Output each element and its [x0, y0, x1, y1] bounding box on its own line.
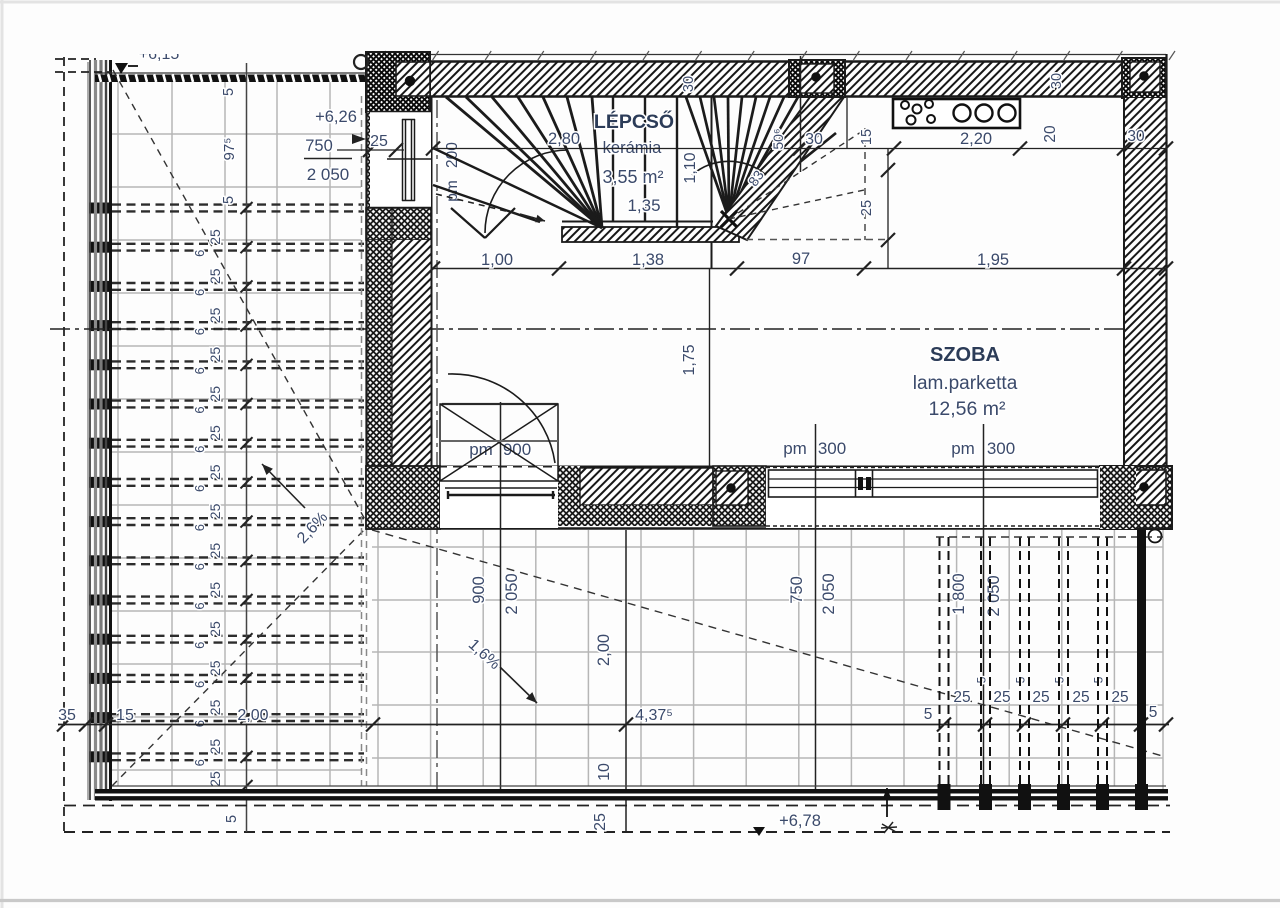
svg-text:2,20: 2,20: [960, 130, 992, 148]
svg-text:lam.parketta: lam.parketta: [913, 373, 1018, 394]
svg-text:6: 6: [192, 485, 207, 492]
svg-text:25: 25: [207, 503, 223, 519]
svg-text:6: 6: [192, 367, 207, 374]
svg-text:25: 25: [207, 660, 223, 676]
svg-text:SZOBA: SZOBA: [930, 344, 1000, 366]
svg-text:6: 6: [192, 563, 207, 570]
svg-text:5: 5: [924, 706, 933, 723]
svg-text:6: 6: [192, 642, 207, 649]
svg-text:3,55 m²: 3,55 m²: [602, 167, 663, 187]
svg-text:5: 5: [221, 88, 237, 96]
svg-text:6: 6: [192, 759, 207, 766]
svg-text:750: 750: [788, 576, 806, 604]
svg-text:1,10: 1,10: [682, 152, 699, 183]
svg-text:30: 30: [681, 76, 697, 92]
svg-text:5: 5: [224, 815, 240, 823]
svg-text:25: 25: [207, 739, 223, 755]
svg-text:20: 20: [1042, 125, 1059, 143]
svg-text:6: 6: [192, 524, 207, 531]
svg-text:2,00: 2,00: [595, 634, 613, 666]
svg-text:35: 35: [58, 707, 76, 724]
svg-text:25: 25: [592, 813, 609, 831]
svg-text:750: 750: [305, 137, 333, 155]
svg-text:900: 900: [503, 440, 531, 459]
svg-text:25: 25: [207, 229, 223, 245]
svg-text:6: 6: [192, 602, 207, 609]
svg-text:6: 6: [192, 406, 207, 413]
svg-text:2,80: 2,80: [548, 130, 580, 148]
svg-text:25: 25: [1072, 689, 1089, 706]
svg-text:1,95: 1,95: [977, 251, 1009, 269]
svg-text:25: 25: [207, 268, 223, 284]
svg-text:5: 5: [221, 196, 237, 204]
svg-text:+6,78: +6,78: [779, 812, 821, 830]
svg-text:6: 6: [192, 289, 207, 296]
svg-text:5: 5: [1149, 704, 1158, 721]
svg-text:25: 25: [207, 771, 223, 787]
svg-text:1,35: 1,35: [627, 196, 660, 215]
svg-text:97: 97: [792, 250, 810, 268]
svg-text:25: 25: [207, 386, 223, 402]
svg-text:1,00: 1,00: [481, 251, 513, 269]
svg-text:25: 25: [207, 307, 223, 323]
svg-text:4,37⁵: 4,37⁵: [635, 707, 673, 724]
svg-text:300: 300: [987, 439, 1015, 458]
svg-text:1,75: 1,75: [681, 344, 698, 375]
svg-text:6: 6: [192, 328, 207, 335]
svg-text:25: 25: [207, 582, 223, 598]
svg-text:25: 25: [207, 699, 223, 715]
svg-text:30: 30: [1049, 73, 1065, 89]
svg-text:15: 15: [116, 707, 134, 724]
svg-text:6: 6: [192, 720, 207, 727]
svg-text:LÉPCSŐ: LÉPCSŐ: [594, 110, 674, 133]
svg-text:25: 25: [207, 543, 223, 559]
svg-text:300: 300: [818, 439, 846, 458]
svg-text:6: 6: [192, 446, 207, 453]
svg-text:25: 25: [859, 200, 875, 216]
svg-text:30: 30: [1127, 128, 1145, 145]
svg-text:25: 25: [370, 133, 388, 150]
svg-text:2 050: 2 050: [985, 575, 1003, 616]
svg-text:25: 25: [207, 621, 223, 637]
svg-text:pm: pm: [783, 439, 807, 458]
svg-text:1,38: 1,38: [632, 251, 664, 269]
svg-text:25: 25: [1032, 689, 1049, 706]
svg-text:15: 15: [859, 129, 875, 145]
svg-text:900: 900: [470, 576, 488, 604]
svg-text:97⁵: 97⁵: [221, 138, 238, 161]
svg-text:50⁶: 50⁶: [770, 128, 786, 149]
svg-text:25: 25: [207, 347, 223, 363]
svg-text:2 050: 2 050: [820, 573, 838, 614]
svg-text:25: 25: [953, 689, 970, 706]
svg-text:25: 25: [1111, 689, 1128, 706]
svg-text:25: 25: [207, 425, 223, 441]
svg-text:2 050: 2 050: [307, 165, 350, 184]
svg-text:10: 10: [596, 763, 613, 781]
svg-text:25: 25: [207, 464, 223, 480]
svg-text:1 800: 1 800: [950, 573, 968, 614]
svg-text:2,00: 2,00: [237, 707, 268, 724]
svg-text:25: 25: [993, 689, 1010, 706]
svg-text:pm: pm: [951, 439, 975, 458]
svg-text:6: 6: [192, 250, 207, 257]
svg-text:30: 30: [805, 131, 823, 148]
svg-text:2 050: 2 050: [503, 573, 521, 614]
svg-text:6: 6: [192, 681, 207, 688]
svg-text:12,56 m²: 12,56 m²: [929, 398, 1006, 420]
svg-text:+6,26: +6,26: [315, 108, 357, 126]
